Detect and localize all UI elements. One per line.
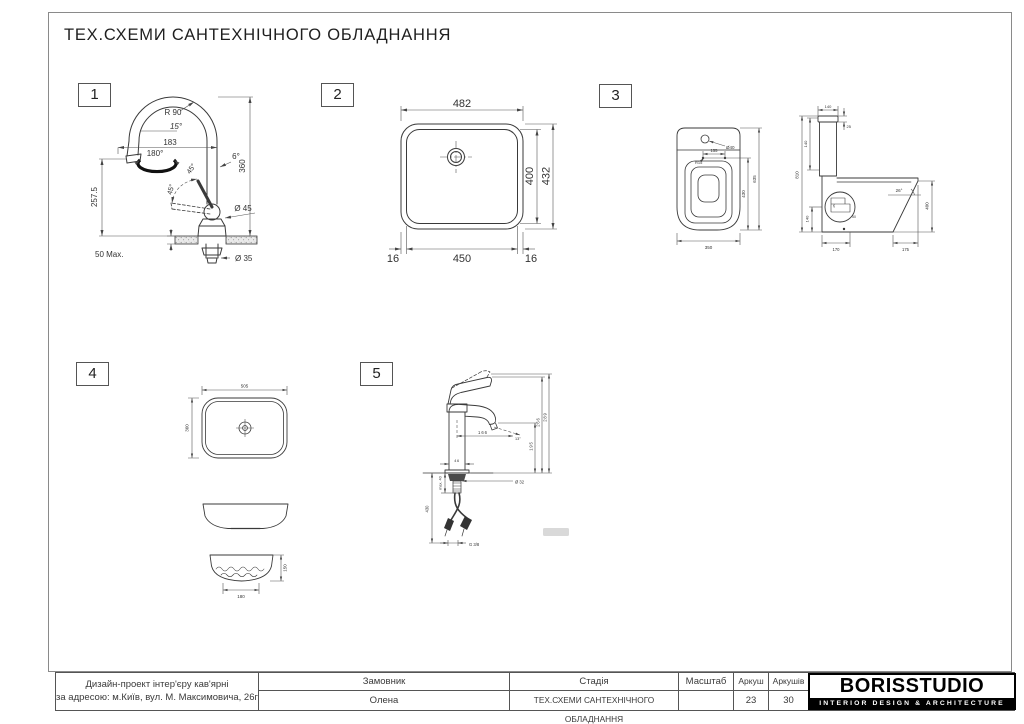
mixer-dimensions: 166 13° 195 266 289 46 Ø 32 max. 40 430 … — [425, 374, 553, 547]
dim-350: 350 — [705, 245, 713, 250]
dim-432: 432 — [541, 167, 553, 185]
titleblock-customer-col: Замовник Олена — [258, 673, 509, 710]
dim-dia45: Ø 45 — [234, 204, 252, 213]
customer-label: Замовник — [259, 673, 509, 691]
dim-289: 289 — [543, 412, 548, 421]
toilet-top-view: Ø40 155 R15 430 635 350 — [677, 128, 762, 250]
basin-top-view: 505 360 — [185, 384, 288, 459]
dim-166: 166 — [478, 430, 488, 435]
titleblock-sheets-col: Аркушів 30 — [768, 673, 808, 710]
drawing-3-toilet: Ø40 155 R15 430 635 350 — [655, 95, 965, 265]
dim-195: 195 — [529, 441, 534, 450]
dim-50max: 50 Max. — [95, 250, 123, 259]
dim-25: 25 — [847, 124, 852, 129]
dim-r15: R15 — [695, 160, 703, 165]
drawing-number-5: 5 — [360, 362, 393, 386]
dim-810: 810 — [795, 171, 800, 179]
dim-430: 430 — [741, 190, 746, 198]
faucet-outline — [126, 97, 257, 263]
dim-13deg: 13° — [515, 437, 521, 441]
project-line2: за адресою: м.Київ, вул. М. Максимовича,… — [56, 692, 258, 705]
dim-183: 183 — [163, 138, 177, 147]
dim-360: 360 — [238, 159, 247, 173]
dim-g38: G 3/8 — [469, 542, 480, 547]
scale-value — [679, 691, 733, 710]
dim-trap-50: 50 — [852, 215, 856, 219]
dim-180: 180 — [237, 594, 245, 599]
drawing-number-2: 2 — [321, 83, 354, 107]
dim-505: 505 — [241, 384, 249, 389]
dim-dia40: Ø40 — [726, 145, 735, 150]
sheets-value: 30 — [769, 691, 808, 710]
drawing-4-basin: 505 360 150 180 — [175, 378, 315, 608]
project-line1: Дизайн-проект інтер'єру кав'ярні — [56, 679, 258, 692]
dim-180deg: 180° — [147, 149, 164, 158]
dim-150: 150 — [283, 564, 288, 572]
scale-label: Масштаб — [679, 673, 733, 691]
drawing-5-basin-mixer: 166 13° 195 266 289 46 Ø 32 max. 40 430 … — [415, 360, 575, 560]
titleblock-stage-col: Стадія ТЕХ.СХЕМИ САНТЕХНІЧНОГО ОБЛАДНАНН… — [509, 673, 678, 710]
sheet-label: Аркуш — [734, 673, 768, 691]
titleblock-scale-col: Масштаб — [678, 673, 733, 710]
dim-r90: R 90 — [165, 108, 182, 117]
dim-482: 482 — [453, 98, 471, 110]
dim-450: 450 — [453, 253, 471, 265]
sheet-title: ТЕХ.СХЕМИ САНТЕХНІЧНОГО ОБЛАДНАННЯ — [64, 26, 451, 45]
dim-430-mixer: 430 — [425, 505, 430, 513]
customer-value: Олена — [259, 691, 509, 710]
drawing-2-sink: 482 400 432 16 450 16 — [385, 88, 570, 273]
basin-side-view — [203, 504, 288, 529]
dim-170: 170 — [833, 247, 841, 252]
dim-360: 360 — [185, 424, 190, 432]
dim-16-right: 16 — [525, 253, 537, 265]
dim-dia32: Ø 32 — [515, 480, 525, 485]
dim-400-side: 400 — [925, 202, 930, 210]
dim-140-upper: 140 — [803, 140, 808, 147]
toilet-side-view: 140 25 140 810 140 26° 400 25 50 170 175 — [795, 104, 936, 252]
dim-155: 155 — [711, 148, 719, 153]
titleblock-sheet-col: Аркуш 23 — [733, 673, 768, 710]
sheets-label: Аркушів — [769, 673, 808, 691]
drawing-number-3: 3 — [599, 84, 632, 108]
drawing-number-4: 4 — [76, 362, 109, 386]
dim-max40: max. 40 — [439, 476, 443, 490]
studio-logo: BORISSTUDIO INTERIOR DESIGN & ARCHITECTU… — [808, 673, 1016, 710]
sheet-value: 23 — [734, 691, 768, 710]
dim-trap-25: 25 — [832, 204, 836, 208]
dim-400: 400 — [524, 167, 536, 185]
dim-140-lower: 140 — [805, 215, 810, 222]
dim-257-5: 257.5 — [90, 186, 99, 207]
dim-15deg: 15° — [170, 122, 183, 131]
dim-26deg: 26° — [896, 188, 903, 193]
dim-dia35: Ø 35 — [235, 254, 253, 263]
mixer-outline — [423, 371, 569, 536]
dim-635: 635 — [752, 175, 757, 183]
dim-46: 46 — [454, 459, 459, 463]
sink-dimensions: 482 400 432 16 450 16 — [387, 98, 557, 265]
titleblock-project-cell: Дизайн-проект інтер'єру кав'ярні за адре… — [56, 673, 258, 710]
dim-266: 266 — [536, 417, 541, 426]
studio-logo-tagline: INTERIOR DESIGN & ARCHITECTURE — [810, 698, 1014, 710]
sink-outline — [401, 124, 523, 229]
basin-front-view: 150 180 — [210, 555, 288, 599]
studio-logo-name: BORISSTUDIO — [810, 675, 1014, 698]
drawing-1-kitchen-faucet: R 90 15° 183 180° 45° 45° 6° 360 257.5 Ø… — [85, 86, 315, 278]
drawing-sheet: ТЕХ.СХЕМИ САНТЕХНІЧНОГО ОБЛАДНАННЯ 1 2 3… — [0, 0, 1024, 724]
dim-140-top: 140 — [825, 104, 832, 109]
watermark — [543, 528, 569, 536]
dim-16-left: 16 — [387, 253, 399, 265]
dim-45deg-a: 45° — [185, 162, 198, 175]
stage-label: Стадія — [510, 673, 678, 691]
stage-value: ТЕХ.СХЕМИ САНТЕХНІЧНОГО ОБЛАДНАННЯ — [510, 691, 678, 710]
dim-175: 175 — [902, 247, 910, 252]
title-block: Дизайн-проект інтер'єру кав'ярні за адре… — [55, 672, 1015, 711]
